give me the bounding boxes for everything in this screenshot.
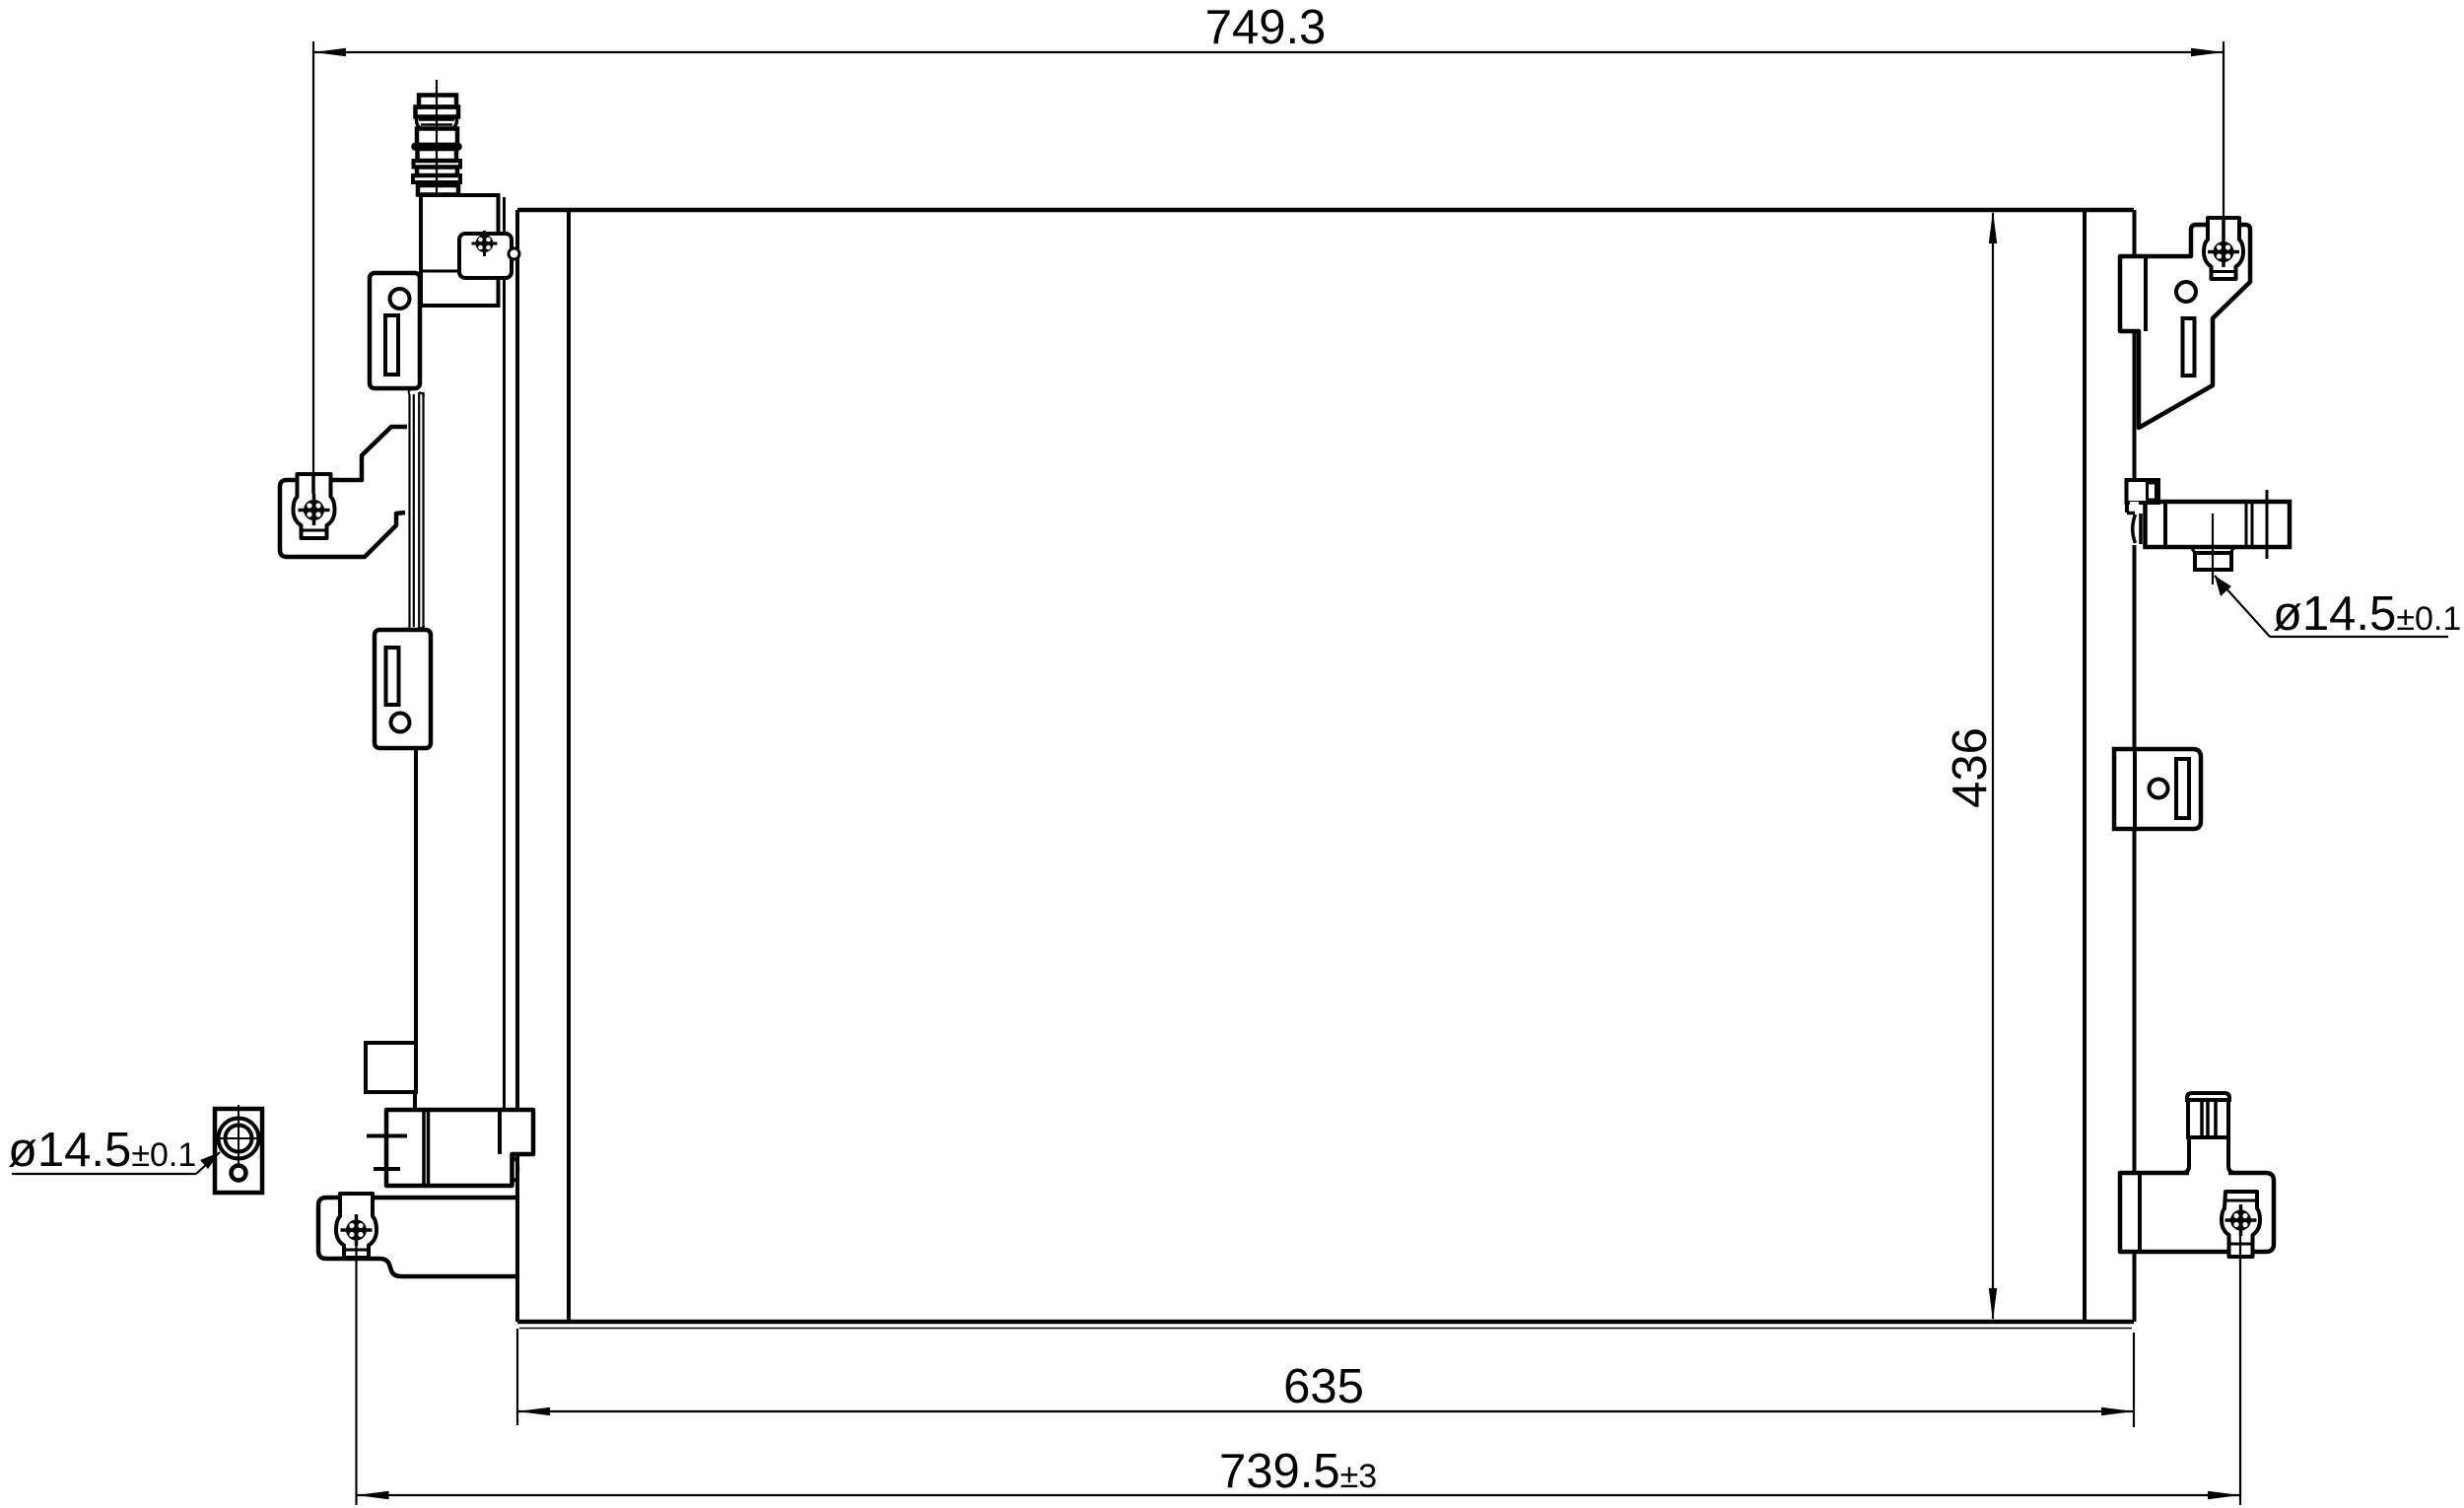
svg-text:436: 436 bbox=[1944, 727, 1997, 808]
svg-text:749.3: 749.3 bbox=[1205, 1, 1327, 54]
svg-text:635: 635 bbox=[1283, 1360, 1364, 1413]
